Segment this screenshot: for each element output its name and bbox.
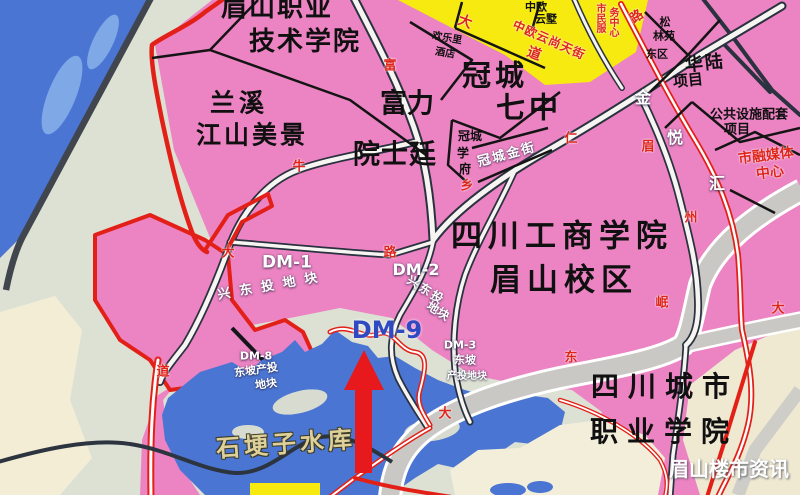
roadchar-xiang: 乡 [460, 180, 473, 193]
label-guancheng-xuefu-2: 学 [457, 147, 469, 159]
label-watermark: 眉山楼市资讯 [669, 459, 789, 479]
label-dm3: DM-3 [444, 340, 476, 351]
label-guancheng-jinjie: 冠城金街 [476, 141, 537, 169]
label-dm3-parcel-1: 东坡 [454, 355, 476, 366]
label-dm1: DM-1 [262, 255, 312, 272]
label-dm3-parcel-2: 产投地块 [447, 372, 487, 382]
label-chengshi-2: 职业学院 [590, 418, 738, 446]
roadchar-hui: 汇 [709, 176, 725, 192]
map: 眉山职业技术学院兰溪江山美景富力院士廷冠城七中四川工商学院眉山校区四川城市职业学… [0, 0, 800, 495]
roadchar-da-west: 大 [221, 247, 234, 260]
label-rongmeiti-2: 中心 [755, 164, 784, 181]
label-gongshang-1: 四川工商学院 [451, 222, 673, 253]
label-meishan-vocational-2: 技术学院 [249, 29, 361, 55]
label-songlinyuan-2: 林苑 [653, 31, 675, 42]
label-dm9: DM-9 [352, 318, 422, 342]
label-dm1-parcel: 兴东投地块 [217, 270, 328, 302]
label-dm2-parcel-2: 地块 [425, 300, 452, 323]
roadchar-lu-topright: 路 [628, 8, 646, 26]
roadchar-dong: 东 [564, 352, 577, 365]
roadchar-lu-mid: 路 [383, 247, 396, 260]
label-guancheng-xuefu-3: 府 [459, 163, 471, 175]
roadchar-min: 岷 [655, 297, 668, 310]
roadchar-niu: 牛 [292, 161, 305, 174]
label-songlinyuan-1: 松 [660, 17, 671, 28]
roadchar-fu: 富 [383, 60, 396, 73]
label-huanleli-2: 酒店 [434, 47, 455, 60]
label-zhongou-yunshu-1: 中欧 [525, 2, 547, 13]
label-gongshe-2: 项目 [724, 124, 750, 137]
roadchar-dao-west: 道 [156, 366, 169, 379]
label-gongshang-2: 眉山校区 [490, 266, 638, 297]
label-dm8-parcel-2: 地块 [254, 377, 277, 391]
label-shimin-fuwu-2: 务中心 [607, 7, 617, 37]
labels-layer: 眉山职业技术学院兰溪江山美景富力院士廷冠城七中四川工商学院眉山校区四川城市职业学… [0, 0, 800, 495]
label-guancheng-xuefu-1: 冠城 [458, 130, 482, 142]
label-lanxi-1: 兰溪 [210, 91, 268, 116]
label-meishan-vocational-1: 眉山职业 [221, 0, 333, 21]
roadchar-jin: 金 [635, 90, 651, 106]
label-zhongou-yunshu-2: 云墅 [535, 14, 557, 25]
roadchar-mei: 眉 [641, 141, 654, 154]
label-rongmeiti-1: 市融媒体 [737, 146, 794, 167]
label-lanxi-2: 江山美景 [196, 123, 308, 148]
roadchar-ren: 仁 [564, 133, 577, 146]
roadchar-yue: 悦 [667, 130, 683, 146]
label-gongshe-1: 公共设施配套 [710, 109, 788, 122]
label-songlinyuan-3: 东区 [646, 49, 668, 60]
roadchar-da-east: 大 [771, 303, 784, 316]
roadchar-zhou: 州 [684, 212, 697, 225]
label-guancheng-7-1: 冠城 [462, 62, 528, 91]
label-reservoir: 石埂子水库 [215, 427, 356, 461]
label-huanleli-1: 欢乐里 [431, 31, 462, 46]
roadchar-dao-north: 道 [525, 45, 543, 63]
label-fuli-1: 富力 [380, 91, 434, 118]
roadchar-da-south: 大 [438, 408, 451, 421]
label-dm8: DM-8 [240, 351, 272, 362]
label-fuli-2: 院士廷 [353, 142, 437, 169]
roadchar-da-north: 大 [456, 13, 474, 31]
label-shimin-fuwu-1: 市民服 [594, 3, 604, 33]
label-guancheng-7-2: 七中 [496, 94, 562, 123]
label-hualu-2: 项目 [672, 72, 703, 90]
label-chengshi-1: 四川城市 [591, 373, 739, 401]
